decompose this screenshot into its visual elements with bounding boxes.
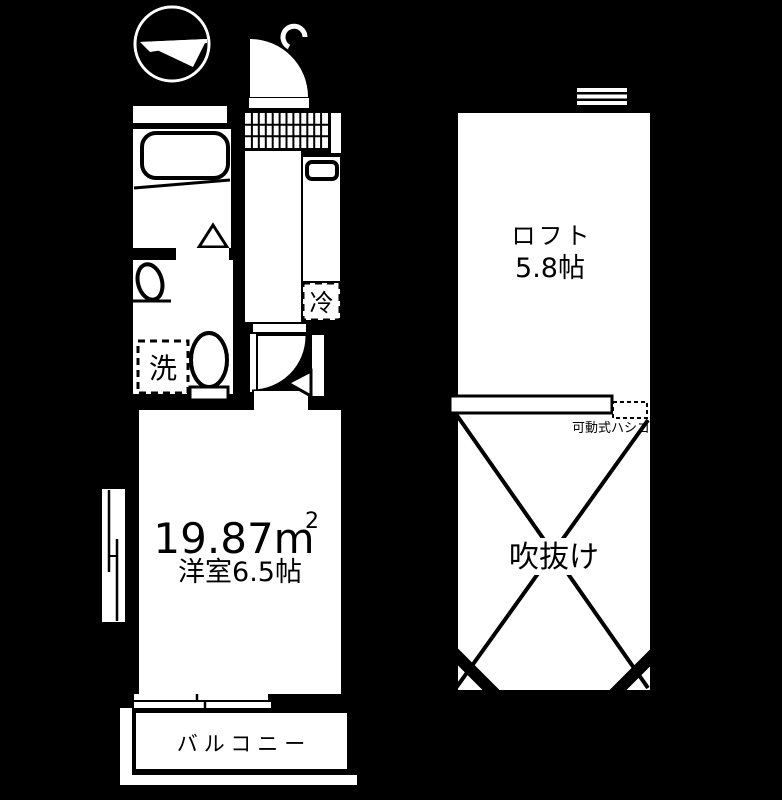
balcony: バルコニー <box>134 711 349 771</box>
kitchen-sink <box>307 162 337 179</box>
toilet-bowl <box>191 333 227 387</box>
bath-window <box>133 106 227 123</box>
washroom: 洗 <box>133 260 233 400</box>
loft-label: ロフト <box>512 222 593 250</box>
ladder-box <box>613 402 647 418</box>
floor-plan-canvas: 洗 <box>0 0 782 800</box>
corridor <box>245 151 301 322</box>
bathroom <box>133 129 231 248</box>
bathtub <box>142 133 228 178</box>
room-size-text: 洋室6.5帖 <box>178 557 302 588</box>
room-area-sup: 2 <box>305 509 319 534</box>
main-room-window <box>101 488 126 623</box>
loft-size-label: 5.8帖 <box>515 253 585 284</box>
shoe-cabinet <box>331 113 341 153</box>
fridge-label: 冷 <box>310 289 334 317</box>
floor-plan-drawing: 洗 <box>0 0 782 800</box>
refrigerator-box: 冷 <box>303 283 340 320</box>
balcony-sliding-door <box>134 694 271 708</box>
room-area-text: 19.87m <box>153 514 314 563</box>
void-label: 吹抜け <box>509 540 599 575</box>
loft-edge-bar <box>450 396 612 413</box>
room-door <box>249 323 324 412</box>
door-leaf <box>249 333 257 393</box>
balcony-label: バルコニー <box>177 732 312 756</box>
logo-circle <box>135 7 209 81</box>
kitchen-counter <box>303 157 340 281</box>
loft-plan: ロフト 5.8帖 可動式ハシゴ 吹抜け <box>441 88 668 701</box>
loft-window <box>577 88 627 105</box>
entrance-tile-grid <box>245 113 328 148</box>
washer-label: 洗 <box>149 352 177 385</box>
bath-doorway <box>176 248 229 260</box>
toilet-base <box>190 387 228 400</box>
entrance-door <box>249 26 309 108</box>
ladder-label: 可動式ハシゴ <box>572 420 650 436</box>
main-room: 19.87m 2 洋室6.5帖 <box>139 410 341 694</box>
